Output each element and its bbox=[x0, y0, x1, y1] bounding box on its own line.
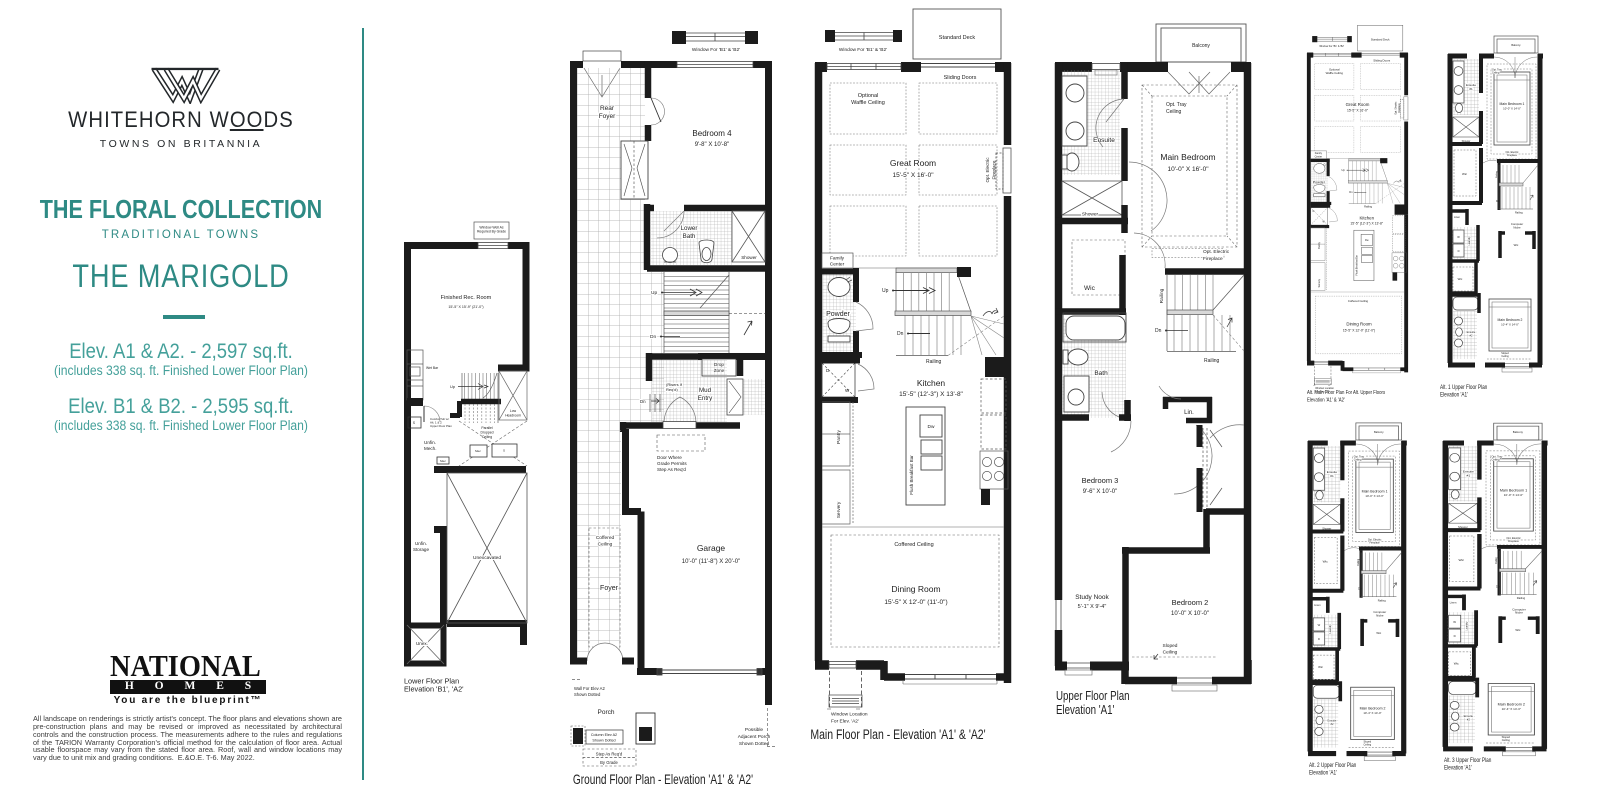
svg-text:Flush Breakfast Bar: Flush Breakfast Bar bbox=[909, 455, 914, 495]
svg-text:Lower: Lower bbox=[681, 225, 698, 232]
svg-text:10'-0" X 10'-0": 10'-0" X 10'-0" bbox=[1171, 611, 1209, 617]
svg-text:Step As Req'd: Step As Req'd bbox=[657, 467, 686, 472]
svg-text:Step As Req'd: Step As Req'd bbox=[596, 752, 623, 757]
svg-text:Railing: Railing bbox=[1204, 358, 1220, 364]
svg-text:Window Location: Window Location bbox=[831, 712, 868, 718]
svg-text:Center: Center bbox=[830, 262, 845, 268]
svg-text:Alt. 2 Upper Floor Plan: Alt. 2 Upper Floor Plan bbox=[1309, 763, 1356, 770]
svg-text:Finished Rec. Room: Finished Rec. Room bbox=[441, 295, 492, 301]
svg-text:Elevation 'B1', 'A2': Elevation 'B1', 'A2' bbox=[404, 685, 464, 694]
svg-text:Unexcavated: Unexcavated bbox=[473, 555, 501, 561]
svg-text:Wic: Wic bbox=[1084, 285, 1096, 292]
svg-text:Kitchen: Kitchen bbox=[917, 378, 946, 388]
svg-text:Bedroom 3: Bedroom 3 bbox=[1082, 476, 1119, 485]
svg-text:Req'd): Req'd) bbox=[666, 387, 678, 392]
svg-text:Mud: Mud bbox=[699, 387, 712, 394]
svg-text:Shown Dotted: Shown Dotted bbox=[739, 741, 769, 747]
svg-text:Dn: Dn bbox=[897, 331, 904, 337]
svg-text:For Elev. 'A2': For Elev. 'A2' bbox=[831, 719, 859, 725]
svg-text:Elevation 'A1' & 'A2': Elevation 'A1' & 'A2' bbox=[1307, 397, 1345, 404]
svg-text:Opt. Electric: Opt. Electric bbox=[1203, 249, 1230, 255]
svg-text:Family: Family bbox=[830, 256, 845, 262]
svg-text:Mech.: Mech. bbox=[424, 446, 437, 451]
svg-text:Shower: Shower bbox=[1082, 212, 1099, 218]
svg-text:Coffered Ceiling: Coffered Ceiling bbox=[894, 542, 933, 548]
svg-text:By Grade: By Grade bbox=[600, 760, 618, 765]
svg-text:Waffle Ceiling: Waffle Ceiling bbox=[851, 100, 885, 106]
svg-text:Sliding Doors: Sliding Doors bbox=[944, 75, 977, 81]
svg-text:Unfin.: Unfin. bbox=[415, 541, 427, 546]
svg-text:Bath: Bath bbox=[683, 233, 696, 240]
svg-text:Main Bedroom: Main Bedroom bbox=[1160, 152, 1215, 162]
svg-text:Low: Low bbox=[510, 409, 517, 413]
svg-text:15'-5" X 15'-9" (21'-0"): 15'-5" X 15'-9" (21'-0") bbox=[448, 305, 483, 309]
svg-text:Lin.: Lin. bbox=[1184, 410, 1194, 416]
svg-text:10'-0" (11'-8") X 20'-0": 10'-0" (11'-8") X 20'-0" bbox=[682, 559, 740, 565]
svg-text:Dining Room: Dining Room bbox=[891, 584, 940, 594]
svg-text:Elevation 'A1': Elevation 'A1' bbox=[1444, 765, 1472, 772]
svg-text:Wet Bar: Wet Bar bbox=[426, 366, 439, 370]
svg-text:Ceiling: Ceiling bbox=[1163, 650, 1178, 656]
svg-text:15'-5" X 16'-0": 15'-5" X 16'-0" bbox=[892, 172, 934, 179]
svg-text:Sloped: Sloped bbox=[1163, 643, 1178, 649]
svg-text:Coffered: Coffered bbox=[596, 535, 615, 541]
svg-text:Bedroom 2: Bedroom 2 bbox=[1172, 598, 1209, 607]
svg-text:Ceiling: Ceiling bbox=[482, 435, 492, 439]
svg-text:15'-5" X 12'-0" (11'-0"): 15'-5" X 12'-0" (11'-0") bbox=[884, 599, 947, 606]
svg-text:Powder: Powder bbox=[826, 311, 850, 318]
svg-text:Possible: Possible bbox=[745, 727, 763, 733]
svg-text:Fireplace: Fireplace bbox=[992, 160, 997, 179]
svg-text:Garage: Garage bbox=[697, 543, 726, 553]
svg-text:Mec: Mec bbox=[440, 459, 446, 463]
svg-text:Elevation 'A1': Elevation 'A1' bbox=[1440, 392, 1468, 399]
svg-text:Mec: Mec bbox=[475, 449, 481, 453]
svg-text:Up: Up bbox=[450, 384, 456, 389]
svg-text:Dn: Dn bbox=[650, 334, 656, 340]
svg-text:Ensuite: Ensuite bbox=[1093, 137, 1115, 144]
svg-text:Pantry: Pantry bbox=[836, 429, 842, 443]
svg-text:Standard Deck: Standard Deck bbox=[939, 35, 976, 41]
svg-text:Unfin.: Unfin. bbox=[424, 440, 436, 445]
svg-text:Storage: Storage bbox=[413, 547, 430, 552]
svg-text:9'-6" X 10'-0": 9'-6" X 10'-0" bbox=[1083, 489, 1118, 495]
svg-text:Window For 'B1' & 'B2': Window For 'B1' & 'B2' bbox=[839, 47, 887, 53]
svg-text:Shown Dotted: Shown Dotted bbox=[592, 739, 615, 743]
svg-text:5'-1" X 9'-4": 5'-1" X 9'-4" bbox=[1078, 604, 1107, 610]
svg-text:Ceiling: Ceiling bbox=[1166, 109, 1182, 115]
svg-text:Railing: Railing bbox=[1159, 288, 1165, 303]
svg-text:Porch: Porch bbox=[598, 709, 615, 716]
svg-text:S: S bbox=[413, 421, 415, 425]
svg-text:10'-0" X 16'-0": 10'-0" X 16'-0" bbox=[1167, 166, 1209, 173]
svg-text:Adjacent Porch: Adjacent Porch bbox=[738, 734, 771, 740]
svg-text:W: W bbox=[845, 388, 850, 393]
svg-text:Entry: Entry bbox=[698, 395, 713, 402]
svg-text:15'-5" (12'-3") X 13'-8": 15'-5" (12'-3") X 13'-8" bbox=[899, 391, 963, 398]
svg-text:Optional: Optional bbox=[858, 93, 879, 99]
svg-text:Foyer: Foyer bbox=[600, 585, 619, 592]
svg-text:Required By Grade: Required By Grade bbox=[477, 230, 506, 234]
svg-text:Ground Floor Plan - Elevation: Ground Floor Plan - Elevation 'A1' & 'A2… bbox=[573, 771, 753, 787]
svg-text:Opt. Electric: Opt. Electric bbox=[985, 157, 990, 183]
svg-text:Wall For Elev A2: Wall For Elev A2 bbox=[574, 686, 605, 691]
svg-text:Ceiling: Ceiling bbox=[598, 542, 613, 548]
svg-text:Elevation 'A1': Elevation 'A1' bbox=[1309, 770, 1337, 777]
svg-text:Dn: Dn bbox=[1155, 328, 1162, 334]
svg-text:Column Elev A2: Column Elev A2 bbox=[591, 733, 617, 737]
svg-text:Study Nook: Study Nook bbox=[1075, 594, 1109, 601]
svg-text:Door Where: Door Where bbox=[657, 455, 682, 460]
svg-text:Unex.: Unex. bbox=[416, 641, 428, 646]
svg-text:Window For 'B1' & 'B2': Window For 'B1' & 'B2' bbox=[692, 47, 740, 53]
svg-text:Servery: Servery bbox=[836, 501, 842, 518]
svg-text:Dw: Dw bbox=[928, 424, 935, 430]
svg-text:Elevation 'A1': Elevation 'A1' bbox=[1056, 704, 1114, 717]
svg-text:Bedroom 4: Bedroom 4 bbox=[692, 129, 732, 138]
svg-text:Upper Floor Plan: Upper Floor Plan bbox=[1056, 690, 1130, 703]
svg-text:Great Room: Great Room bbox=[890, 158, 936, 168]
svg-text:Upper Floor Plan: Upper Floor Plan bbox=[430, 424, 452, 428]
svg-text:Alt. 3 Upper Floor Plan: Alt. 3 Upper Floor Plan bbox=[1444, 758, 1491, 765]
svg-text:Parallel: Parallel bbox=[481, 426, 493, 430]
svg-text:Foyer: Foyer bbox=[599, 113, 616, 120]
svg-text:Balcony: Balcony bbox=[1192, 43, 1210, 49]
svg-text:Headroom: Headroom bbox=[505, 414, 521, 418]
svg-text:Up: Up bbox=[882, 288, 889, 294]
svg-text:Bath: Bath bbox=[1094, 370, 1108, 377]
svg-text:Rear: Rear bbox=[600, 105, 615, 112]
svg-text:9'-8" X 10'-8": 9'-8" X 10'-8" bbox=[695, 142, 730, 148]
svg-text:Railing: Railing bbox=[926, 359, 942, 365]
svg-text:Main Floor Plan - Elevation 'A: Main Floor Plan - Elevation 'A1' & 'A2' bbox=[810, 727, 985, 743]
svg-text:Alt. Main Floor Plan For Alt.: Alt. Main Floor Plan For Alt. Upper Floo… bbox=[1307, 389, 1385, 396]
svg-text:Dropped: Dropped bbox=[480, 431, 493, 435]
svg-text:Opt. Tray: Opt. Tray bbox=[1166, 102, 1187, 108]
svg-text:S: S bbox=[503, 449, 505, 453]
svg-text:Up: Up bbox=[651, 290, 657, 296]
svg-text:Fireplace: Fireplace bbox=[1203, 256, 1223, 262]
svg-text:Alt. 1 Upper Floor Plan: Alt. 1 Upper Floor Plan bbox=[1440, 385, 1487, 392]
svg-text:Dn: Dn bbox=[640, 399, 646, 404]
svg-text:Shower: Shower bbox=[741, 255, 757, 260]
svg-text:Grade Permits: Grade Permits bbox=[657, 461, 687, 466]
svg-text:Shown Dotted: Shown Dotted bbox=[574, 692, 601, 697]
